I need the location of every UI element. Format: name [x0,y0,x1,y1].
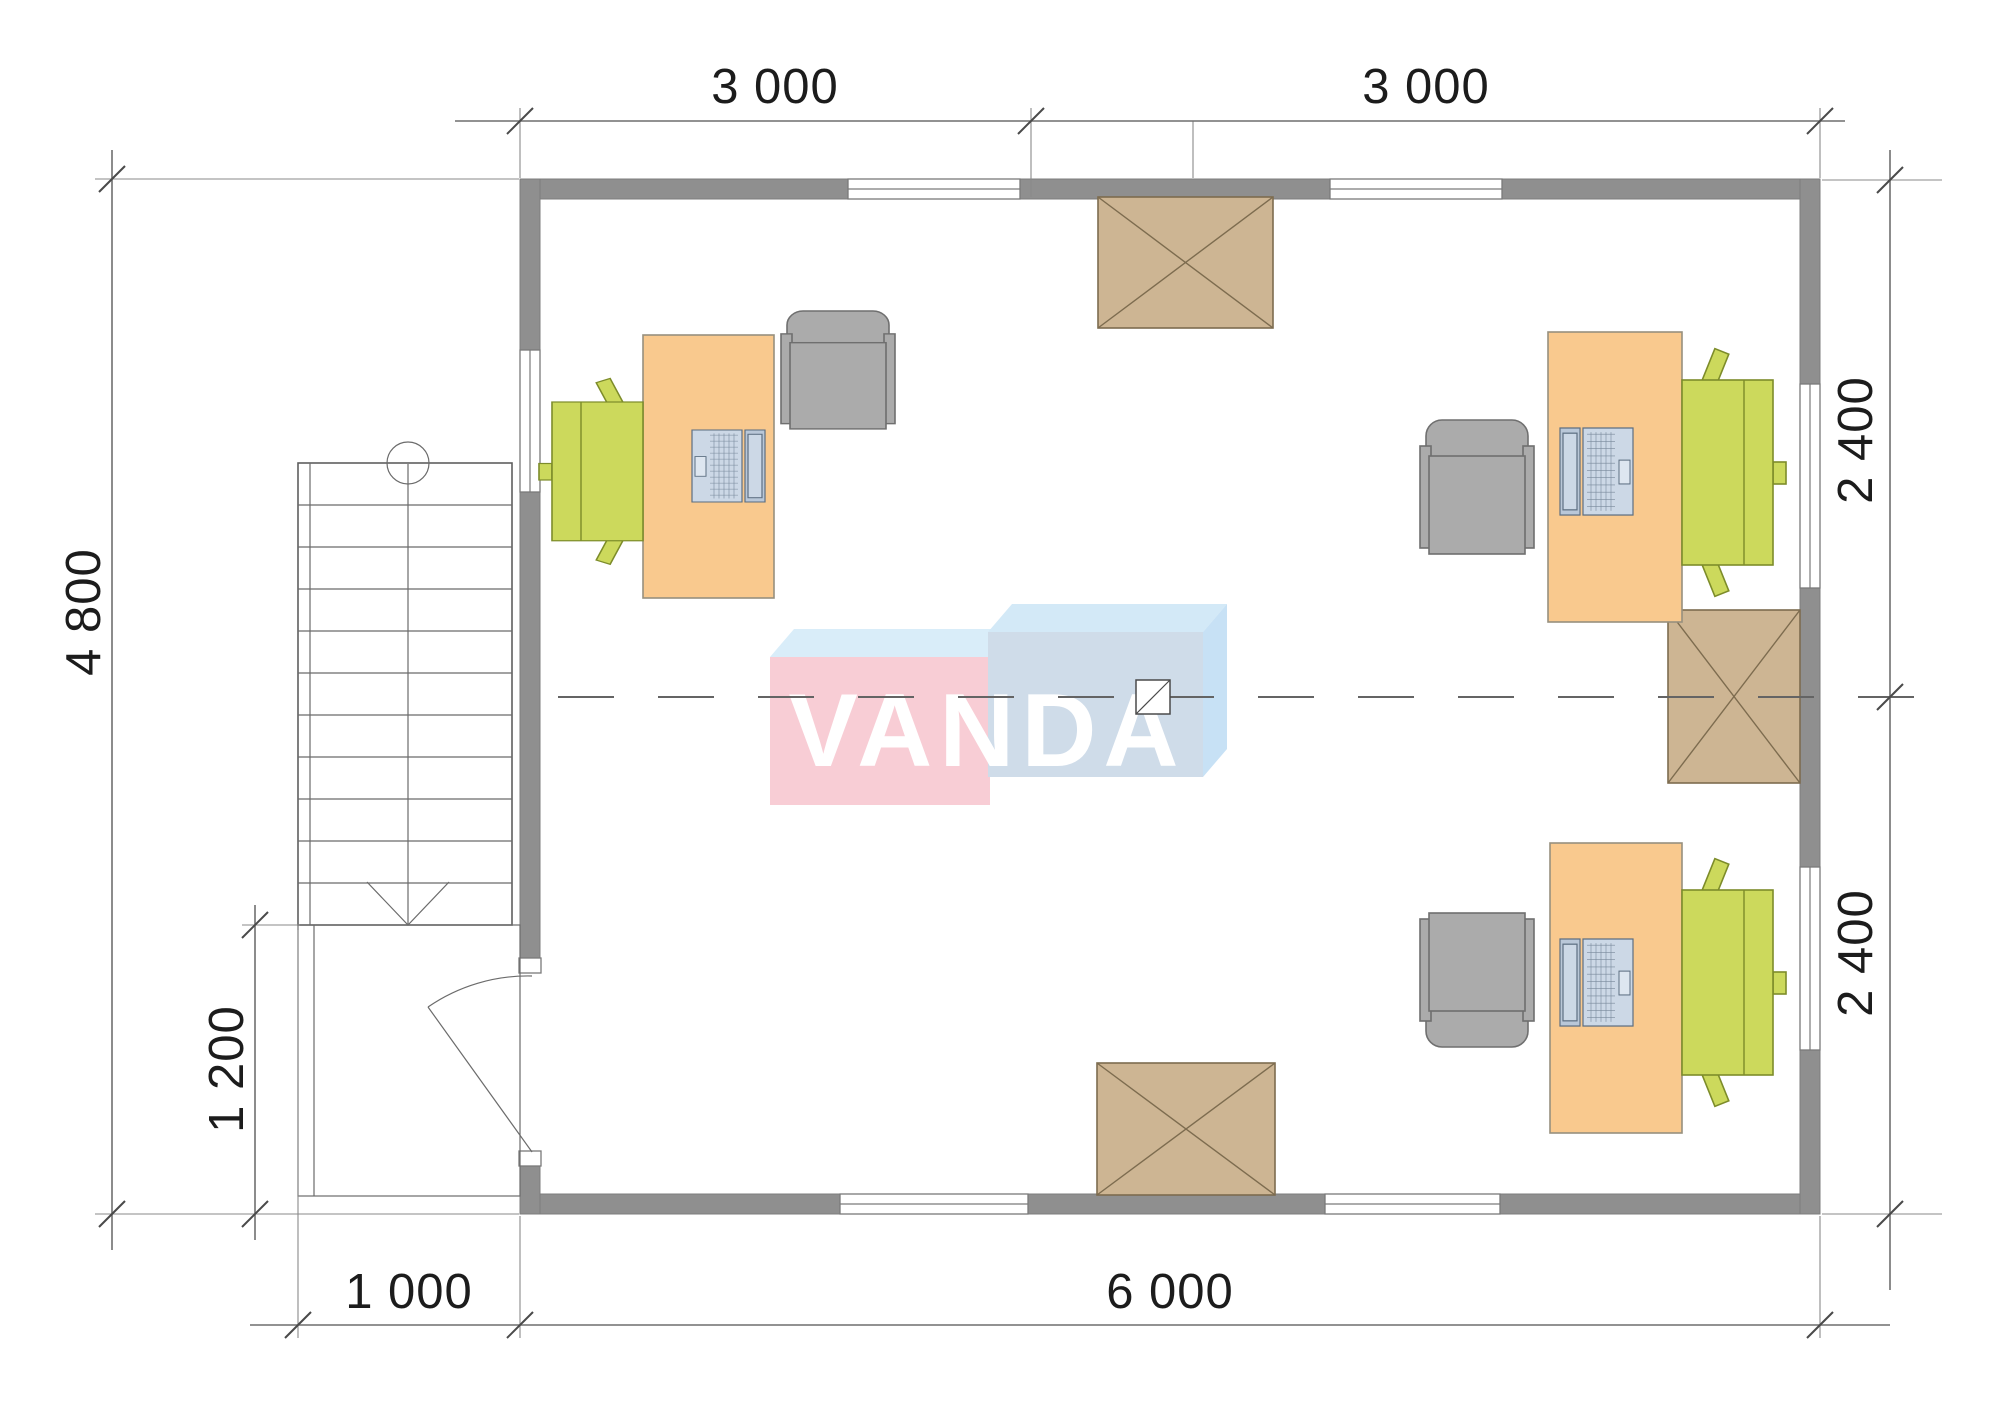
task-chair [539,378,643,564]
floor-plan-drawing: VANDA [0,0,2000,1410]
door-jamb-bottom [519,1151,541,1166]
wall-bottom [520,1194,1820,1214]
dim-label-right-lower: 2 400 [1829,889,1883,1017]
logo-text: VANDA [788,673,1185,789]
dim-label-right-upper: 2 400 [1829,376,1883,504]
window-bottom-right [1325,1194,1500,1214]
guest-chair [781,311,895,429]
dimension-right: 2 400 2 400 [1822,150,1942,1290]
task-chair [1682,859,1786,1107]
door-leaf [428,1007,532,1152]
dim-label-bottom-width: 6 000 [1106,1265,1234,1319]
guest-chair [1420,420,1534,554]
window-left [520,350,540,492]
dim-label-porch-depth: 1 200 [200,1005,254,1133]
door-swing-arc [428,976,532,1007]
door-opening [519,972,541,1153]
guest-chair [1420,913,1534,1047]
skylight-top [1098,197,1273,328]
porch-outline [298,925,520,1196]
entrance-door [428,958,541,1166]
stair-treads [298,505,512,883]
door-jamb-top [519,958,541,973]
window-top-right [1330,179,1502,199]
laptop-icon [1560,428,1633,515]
workstation-bottom-right [1420,843,1786,1133]
dim-label-top-left: 3 000 [711,60,839,114]
workstation-top-left [539,311,895,598]
column-marker [1136,680,1170,714]
dimension-top: 3 000 3 000 [455,60,1845,197]
laptop-icon [692,430,765,502]
skylight-bottom [1097,1063,1275,1195]
floor-plan: VANDA [0,0,2000,1410]
window-right-lower [1800,867,1820,1050]
dim-label-top-right: 3 000 [1362,60,1490,114]
dim-label-bottom-porch: 1 000 [345,1265,473,1319]
logo-top-face-pink [770,629,1014,657]
wall-top [520,179,1820,199]
logo-side-face [1203,604,1227,777]
workstation-top-right [1420,332,1786,622]
laptop-icon [1560,939,1633,1026]
entrance-porch [298,925,520,1196]
dimension-left: 4 800 [57,150,519,1250]
dimension-porch: 1 200 [200,905,300,1240]
stair-outline [298,463,512,925]
window-right-upper [1800,384,1820,588]
dim-label-left-height: 4 800 [57,548,111,676]
logo-top-face-blue [988,604,1227,632]
task-chair [1682,349,1786,597]
window-bottom-left [840,1194,1028,1214]
window-top-left [848,179,1020,199]
staircase [298,442,512,925]
